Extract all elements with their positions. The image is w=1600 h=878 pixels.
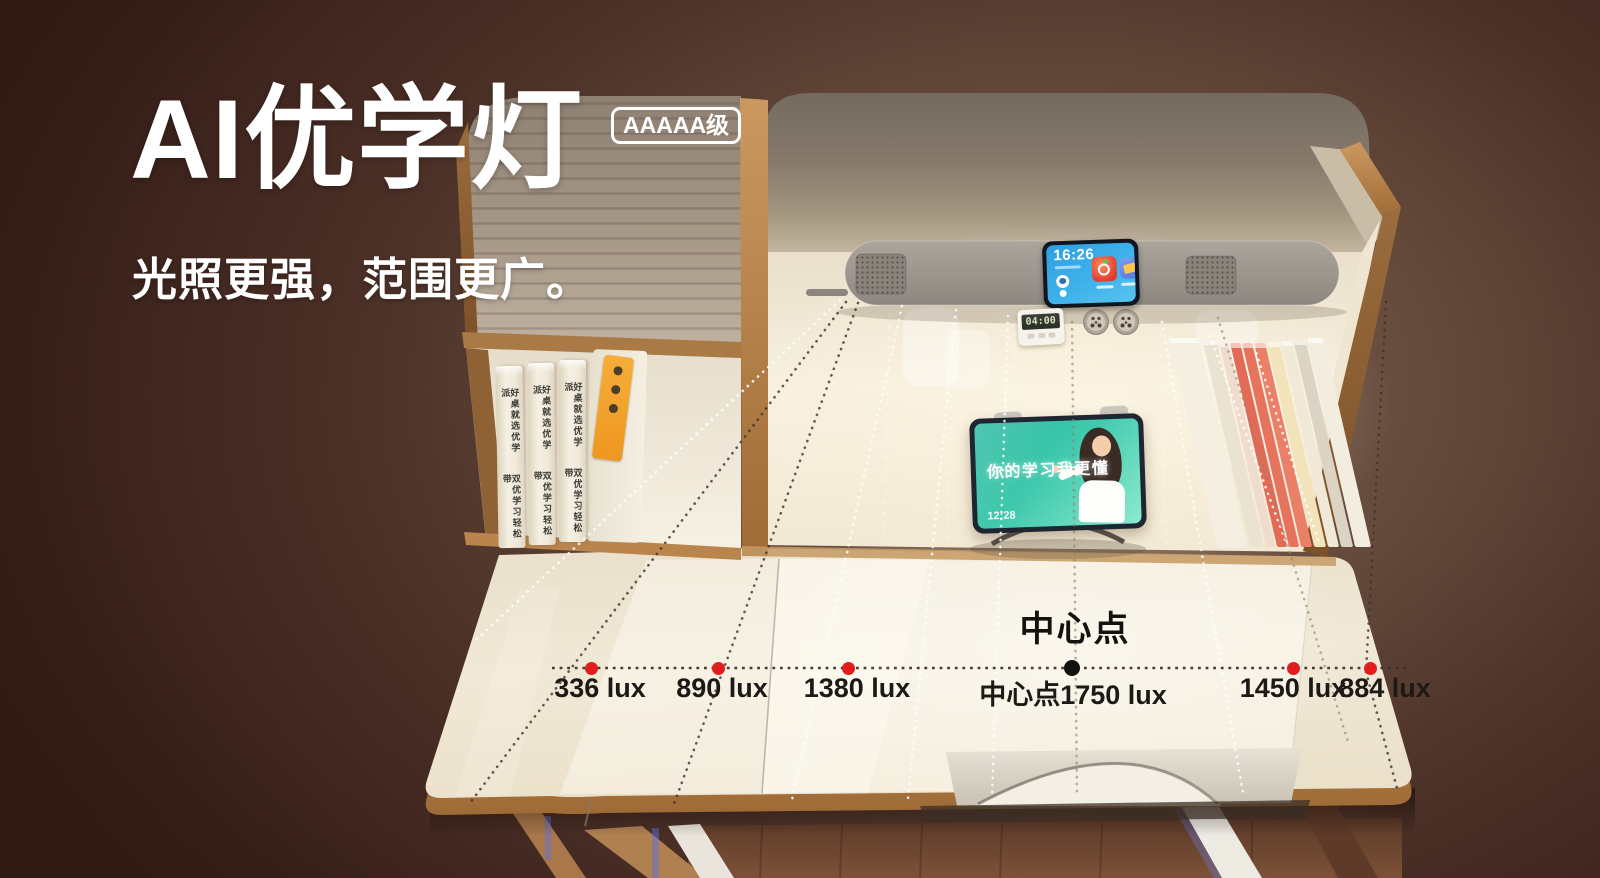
light-rays-dark [470,302,1398,804]
light-rays-white [476,300,1318,800]
product-ad-banner: 好桌就选优学派 双优学习轻松带 好桌就选优学派 双优学习轻松带 好桌就选优学派 … [0,0,1600,878]
light-rays-grey [1072,318,1348,796]
light-rays-overlay [0,0,1600,878]
